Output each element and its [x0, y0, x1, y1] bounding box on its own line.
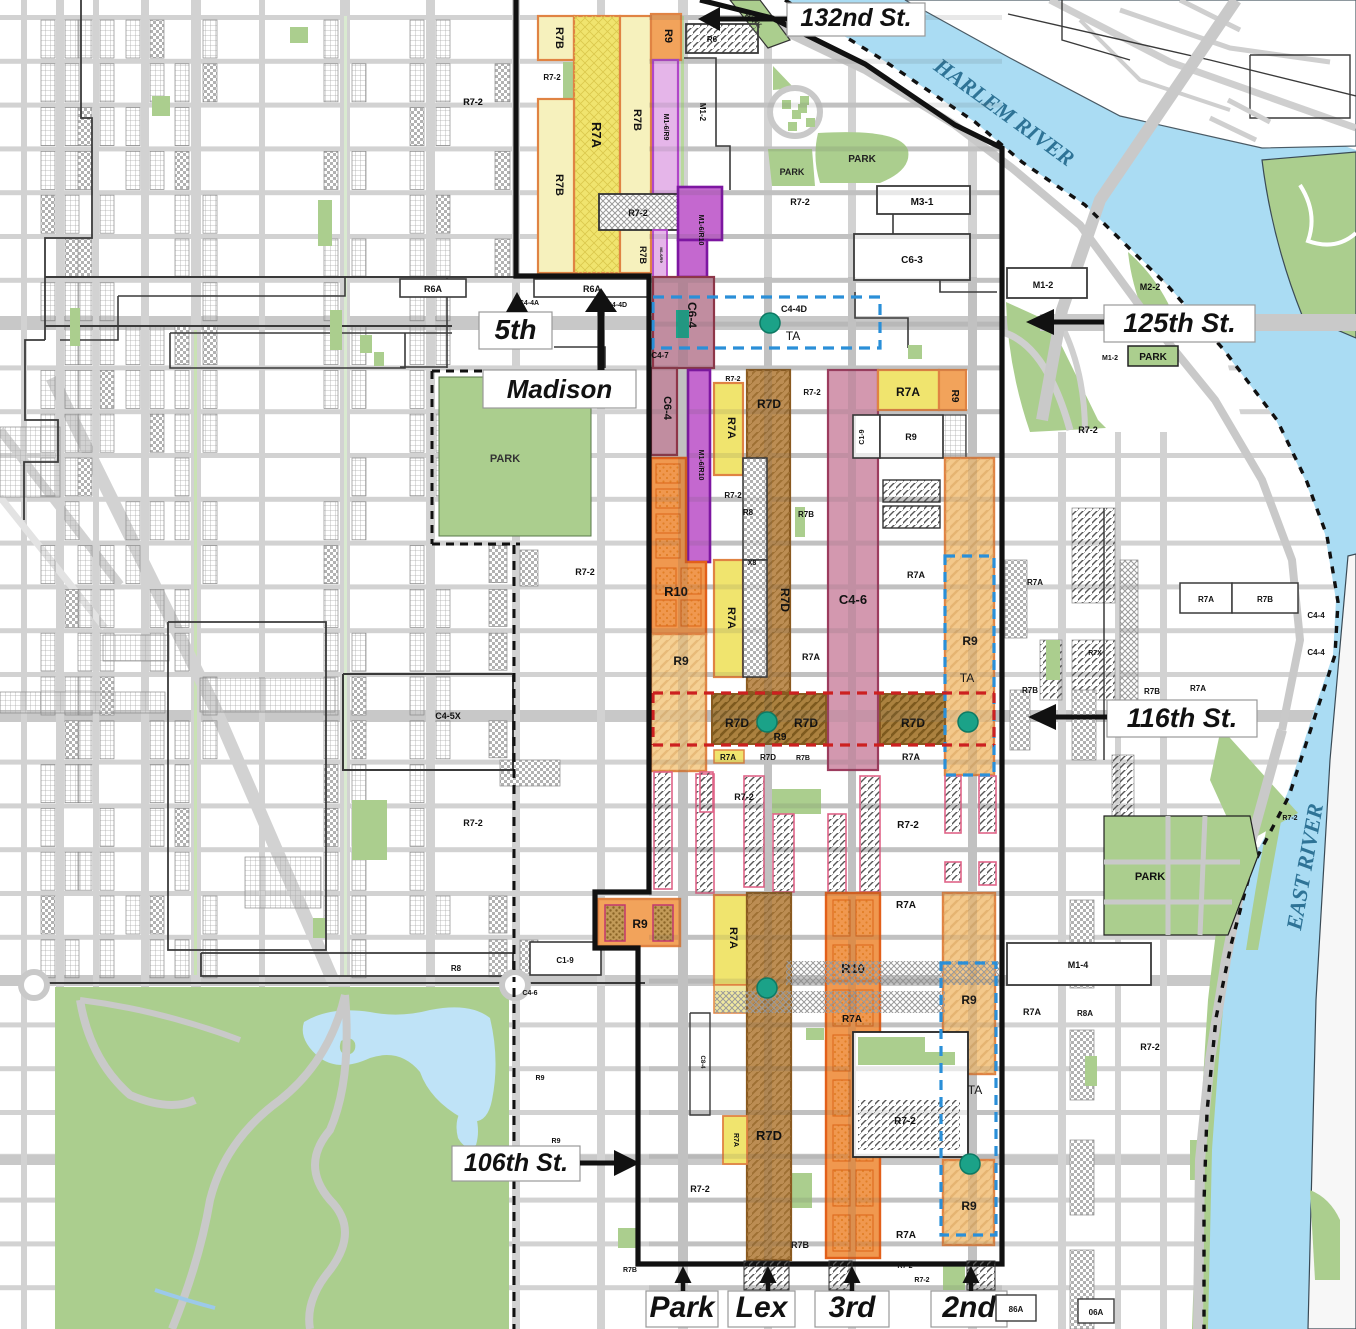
svg-text:R7-2: R7-2 [790, 197, 810, 207]
svg-text:R7B: R7B [553, 174, 565, 196]
svg-text:5th: 5th [495, 314, 537, 345]
svg-text:R7A: R7A [725, 417, 737, 439]
svg-text:C1-9: C1-9 [556, 956, 574, 965]
svg-text:C4-4: C4-4 [1307, 648, 1325, 657]
svg-text:R7-2: R7-2 [734, 792, 754, 802]
svg-text:R7-2: R7-2 [1140, 1042, 1160, 1052]
svg-text:R7B: R7B [1257, 595, 1273, 604]
svg-text:M1-6/R10: M1-6/R10 [697, 215, 704, 246]
svg-text:C6-3: C6-3 [901, 255, 923, 266]
svg-text:PARK: PARK [848, 154, 876, 165]
svg-text:R7A: R7A [802, 652, 821, 662]
svg-text:R7-2: R7-2 [628, 208, 648, 218]
svg-text:R7A: R7A [896, 385, 920, 399]
svg-text:R7-2: R7-2 [803, 388, 821, 397]
svg-text:M1-6/R9: M1-6/R9 [659, 247, 664, 263]
svg-text:R6A: R6A [424, 284, 443, 294]
svg-text:R7B: R7B [1144, 687, 1160, 696]
svg-text:Madison: Madison [507, 374, 612, 404]
svg-text:132nd St.: 132nd St. [800, 4, 911, 32]
svg-text:R7-2: R7-2 [463, 818, 483, 828]
svg-text:C4-4: C4-4 [1307, 611, 1325, 620]
svg-text:R7X: R7X [1088, 650, 1102, 657]
svg-text:R6: R6 [707, 35, 718, 44]
svg-text:C6-4: C6-4 [661, 396, 673, 421]
svg-text:2nd: 2nd [941, 1291, 996, 1324]
svg-text:M1-2: M1-2 [1102, 355, 1118, 362]
svg-text:R8: R8 [743, 508, 754, 517]
svg-text:R7-2: R7-2 [463, 97, 483, 107]
svg-text:R9: R9 [949, 390, 960, 403]
svg-text:R7B: R7B [1022, 686, 1038, 695]
svg-text:86A: 86A [1009, 1305, 1024, 1314]
svg-text:R9: R9 [536, 1075, 545, 1082]
svg-text:R7-2: R7-2 [575, 567, 595, 577]
svg-text:R9: R9 [905, 432, 917, 442]
svg-text:C1-9: C1-9 [859, 429, 866, 444]
svg-text:C4-7: C4-7 [651, 351, 669, 360]
svg-text:R9: R9 [774, 732, 787, 743]
svg-text:R7A: R7A [1190, 684, 1206, 693]
svg-text:C4-4D: C4-4D [781, 304, 808, 314]
svg-text:PARK: PARK [1139, 352, 1167, 363]
svg-text:M2-2: M2-2 [1140, 282, 1161, 292]
svg-text:R7B: R7B [623, 1267, 637, 1274]
svg-text:R7A: R7A [725, 607, 737, 629]
svg-text:R7D: R7D [778, 588, 792, 612]
svg-text:PARK: PARK [490, 453, 520, 465]
svg-text:R7A: R7A [589, 122, 604, 149]
svg-text:X8: X8 [748, 560, 757, 567]
svg-text:R7B: R7B [631, 109, 643, 131]
svg-text:R7A: R7A [1027, 578, 1043, 587]
svg-text:R9: R9 [552, 1138, 561, 1145]
svg-text:R7-2: R7-2 [897, 820, 919, 831]
svg-text:R7-2: R7-2 [690, 1184, 710, 1194]
svg-text:M1-6/R9: M1-6/R9 [662, 114, 669, 141]
svg-text:R7-2: R7-2 [894, 1116, 916, 1127]
svg-text:R7B: R7B [798, 510, 814, 519]
svg-text:TA: TA [786, 329, 800, 343]
svg-text:R7B: R7B [553, 27, 565, 49]
svg-text:R7-2: R7-2 [1078, 425, 1098, 435]
svg-text:PARK: PARK [780, 167, 805, 177]
svg-text:106th St.: 106th St. [464, 1149, 568, 1177]
svg-text:Lex: Lex [736, 1291, 789, 1324]
svg-text:R7-2: R7-2 [543, 73, 561, 82]
svg-text:R8A: R8A [1077, 1009, 1093, 1018]
svg-text:R7A: R7A [1023, 1007, 1042, 1017]
svg-text:C4-5X: C4-5X [435, 711, 461, 721]
svg-text:116th St.: 116th St. [1127, 703, 1238, 733]
svg-text:R7-2: R7-2 [725, 376, 740, 383]
svg-text:R9: R9 [662, 29, 674, 43]
svg-text:C4-6: C4-6 [522, 990, 537, 997]
svg-text:PARK: PARK [1135, 871, 1165, 883]
svg-text:R7-2: R7-2 [914, 1277, 929, 1284]
svg-text:R9: R9 [632, 917, 648, 931]
svg-text:R7A: R7A [896, 900, 916, 911]
svg-text:R7A: R7A [1198, 595, 1214, 604]
svg-text:R7A: R7A [907, 570, 926, 580]
svg-text:M1-4: M1-4 [1068, 960, 1089, 970]
svg-text:125th St.: 125th St. [1123, 308, 1236, 338]
svg-text:R7A: R7A [896, 1230, 916, 1241]
svg-text:R7-2: R7-2 [1282, 815, 1297, 822]
svg-text:R8: R8 [451, 964, 462, 973]
svg-text:Park: Park [649, 1291, 715, 1324]
svg-text:3rd: 3rd [829, 1291, 876, 1324]
svg-text:M3-1: M3-1 [911, 197, 934, 208]
svg-text:M1-2: M1-2 [1033, 280, 1054, 290]
svg-text:R7B: R7B [638, 246, 648, 265]
svg-text:R7-2: R7-2 [897, 1263, 912, 1270]
svg-text:R7A: R7A [732, 1133, 739, 1147]
svg-text:06A: 06A [1089, 1308, 1104, 1317]
